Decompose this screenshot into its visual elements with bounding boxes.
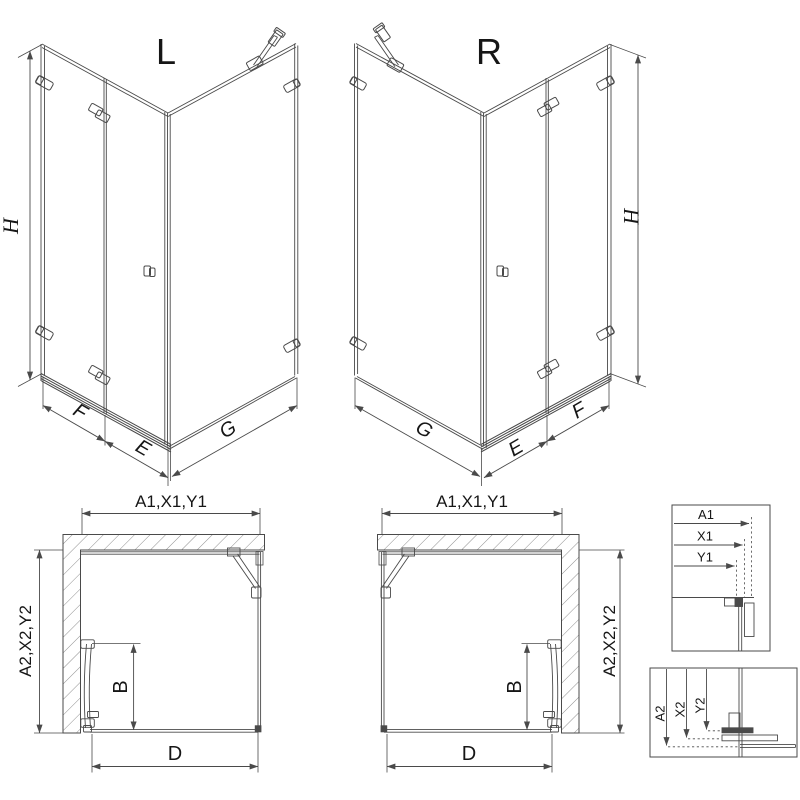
iso-view-left <box>18 27 301 486</box>
door-hinge <box>87 103 112 123</box>
wall-clamp <box>596 325 615 341</box>
back-glass <box>81 552 260 554</box>
variant-label-l: L <box>156 31 176 72</box>
door-knob <box>497 266 508 277</box>
panel-clamp <box>349 336 367 351</box>
plan-width-label-r: A1,X1,Y1 <box>436 492 508 511</box>
wall <box>63 535 265 734</box>
plan-door-label-r: B <box>504 680 526 693</box>
sill <box>384 730 552 733</box>
plan-view-right <box>378 508 625 773</box>
back-glass <box>383 552 562 554</box>
plan-door-label-l: B <box>110 680 132 693</box>
dim-fe-left <box>43 378 168 487</box>
door-hinge <box>87 365 112 385</box>
dim-label-e-r: E <box>505 435 528 461</box>
profile-section <box>722 713 796 747</box>
wall-clamp <box>596 75 615 91</box>
labels: L R H H F E G G E F A1,X1,Y1 A2,X2,Y2 B … <box>0 31 714 765</box>
dim-label-f-l: F <box>69 399 92 425</box>
dim-height-left <box>18 45 42 387</box>
variant-label-r: R <box>476 31 502 72</box>
detail-label-x1: X1 <box>697 529 713 544</box>
detail-label-y2: Y2 <box>693 698 708 714</box>
support-brace <box>246 27 286 71</box>
dim-label-g-l: G <box>216 416 240 443</box>
linework <box>18 23 797 773</box>
side-glass <box>381 552 384 731</box>
plan-entry-label-r: D <box>462 743 476 765</box>
panel-top-bracket <box>379 552 386 566</box>
dim-width <box>82 508 260 534</box>
plan-width-label-l: A1,X1,Y1 <box>135 492 207 511</box>
plan-depth-label-r: A2,X2,Y2 <box>600 605 619 677</box>
dim-width <box>382 508 562 534</box>
dim-label-g-r: G <box>412 416 436 443</box>
detail-label-y1: Y1 <box>697 550 713 565</box>
detail-view-width <box>672 505 770 651</box>
dim-label-height-l: H <box>0 217 23 235</box>
shower-enclosure-diagram: L R H H F E G G E F A1,X1,Y1 A2,X2,Y2 B … <box>0 0 800 800</box>
profile-section <box>725 598 755 651</box>
wall <box>378 535 580 734</box>
detail-label-x2: X2 <box>673 702 688 718</box>
panel-clamp <box>349 76 367 91</box>
sill <box>90 730 258 733</box>
door-plan <box>81 640 99 732</box>
detail-label-a1: A1 <box>698 507 714 522</box>
corner-block <box>381 726 387 732</box>
plan-entry-label-l: D <box>168 743 182 765</box>
iso-view-right <box>349 23 646 486</box>
plan-view-left <box>34 508 265 773</box>
dim-label-e-l: E <box>132 435 155 461</box>
detail-label-a2: A2 <box>653 706 668 722</box>
dim-label-f-r: F <box>568 397 591 423</box>
plan-depth-label-l: A2,X2,Y2 <box>16 605 35 677</box>
door-plan <box>544 640 562 732</box>
shower-enclosure-diagram-canvas: L R H H F E G G E F A1,X1,Y1 A2,X2,Y2 B … <box>0 0 800 800</box>
door-knob <box>144 266 155 277</box>
panel-top-bracket <box>256 552 263 566</box>
dim-label-height-r: H <box>619 207 644 225</box>
dim-depth <box>34 550 63 733</box>
